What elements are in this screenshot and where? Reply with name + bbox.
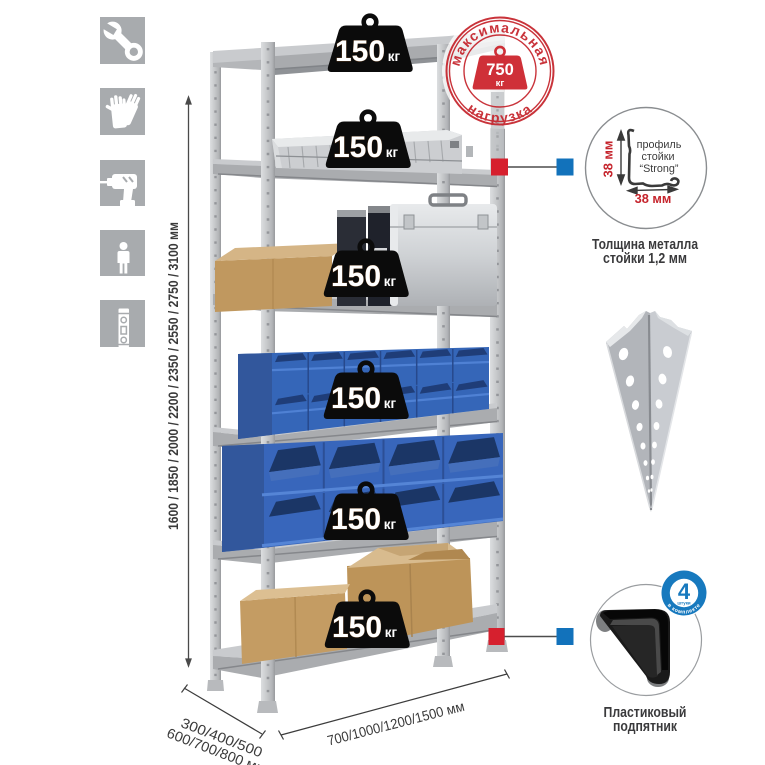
- svg-text:профиль: профиль: [637, 139, 682, 151]
- svg-text:38 мм: 38 мм: [601, 141, 616, 178]
- svg-text:38 мм: 38 мм: [635, 191, 672, 206]
- svg-text:“Strong”: “Strong”: [639, 163, 678, 175]
- svg-text:750: 750: [486, 61, 514, 79]
- svg-text:подпятник: подпятник: [613, 718, 677, 735]
- svg-text:1600 / 1850 / 2000 / 2200 / 23: 1600 / 1850 / 2000 / 2200 / 2350 / 2550 …: [166, 222, 181, 530]
- svg-text:стойки: стойки: [641, 151, 674, 163]
- svg-text:штуки: штуки: [677, 601, 691, 606]
- svg-text:стойки 1,2 мм: стойки 1,2 мм: [603, 250, 687, 267]
- svg-text:кг: кг: [496, 78, 505, 89]
